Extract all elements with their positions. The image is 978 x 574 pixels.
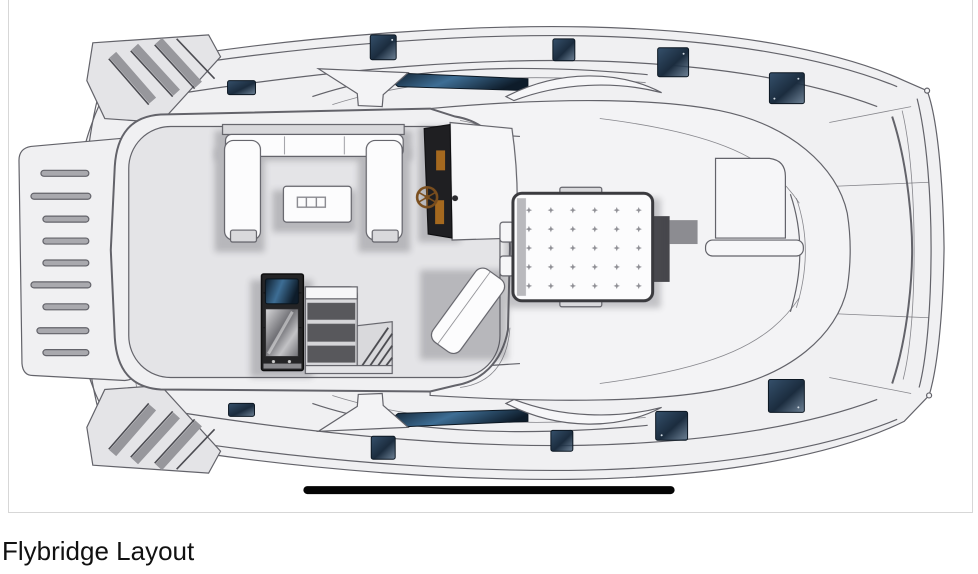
settee-cushion-right bbox=[366, 140, 402, 240]
foredeck-crossbar bbox=[706, 240, 804, 256]
throttle-knob bbox=[452, 195, 458, 201]
figure-caption: Flybridge Layout bbox=[2, 536, 194, 566]
bar-sink-top bbox=[265, 279, 298, 304]
settee-cushion-left bbox=[225, 140, 261, 240]
wet-bar-fridge bbox=[261, 274, 303, 371]
scale-bar bbox=[303, 486, 674, 494]
instrument-panel bbox=[435, 200, 444, 224]
sunpad-hinge bbox=[517, 198, 526, 296]
bow-fitting-bottom bbox=[927, 393, 932, 398]
flybridge-plan-image bbox=[9, 0, 972, 512]
coffee-table bbox=[283, 186, 351, 222]
bow-fitting-top bbox=[925, 88, 930, 93]
settee-backrest-rail bbox=[223, 125, 405, 135]
flybridge-plan-figure bbox=[8, 0, 973, 513]
instrument-panel bbox=[436, 150, 445, 170]
deck-recess bbox=[670, 220, 698, 244]
tufted-sunpad bbox=[500, 187, 653, 307]
bar-counter-shelves bbox=[305, 287, 357, 366]
